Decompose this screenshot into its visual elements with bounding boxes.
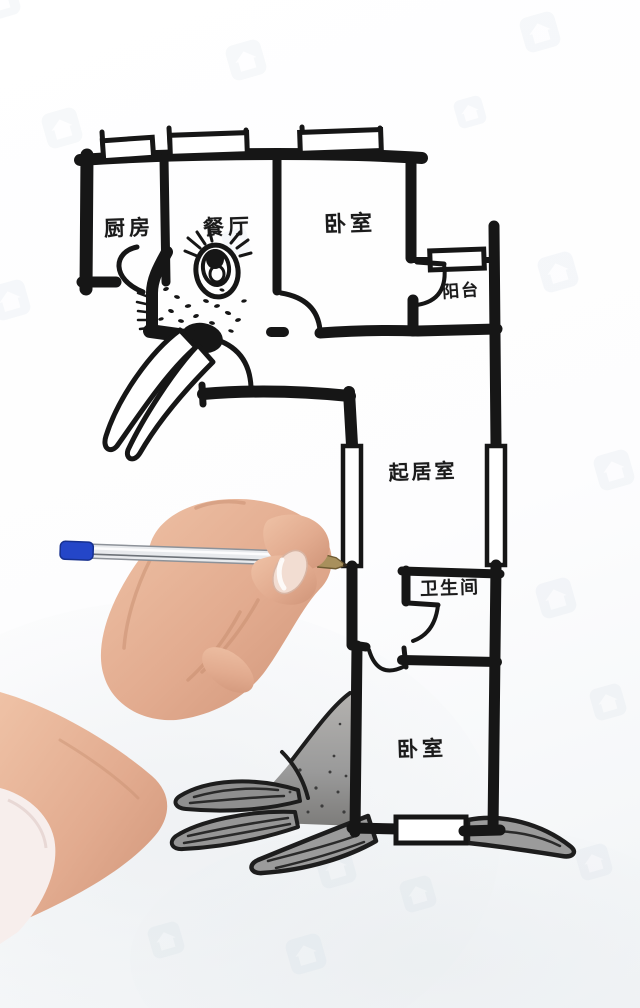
room-label-dining: 餐厅 <box>202 210 253 242</box>
wall-left <box>86 155 87 289</box>
pen-cap <box>60 541 94 560</box>
illustration-canvas: 厨房 餐厅 卧室 阳台 起居室 卫生间 卧室 <box>0 0 640 1008</box>
wall-bedroom-bottom-bottom <box>464 830 500 831</box>
window-bedroom-bottom <box>396 817 466 843</box>
wall-bedroom-bottom-left <box>355 646 357 832</box>
window-dining <box>170 133 248 157</box>
wall-right-lower <box>493 565 496 830</box>
wall-living-left-upper <box>349 392 352 445</box>
floorplan-walrus-drawing <box>0 0 640 1008</box>
walrus-nose-curve <box>119 247 143 292</box>
door-leaf-balcony <box>417 262 444 264</box>
room-label-living-room: 起居室 <box>388 454 458 485</box>
wall-neck <box>203 392 350 396</box>
room-label-bathroom: 卫生间 <box>420 573 481 601</box>
window-kitchen <box>102 137 153 160</box>
window-living-right <box>487 446 505 565</box>
wall-right-upper <box>494 226 496 444</box>
room-label-balcony: 阳台 <box>441 275 481 303</box>
door-arc-bathroom <box>413 605 438 641</box>
door-arc-bedroom-top <box>281 293 320 330</box>
window-balcony <box>430 249 485 270</box>
wall-bathroom-bottom <box>402 660 497 662</box>
walrus-face <box>105 229 251 459</box>
room-label-bedroom-bottom: 卧室 <box>396 732 447 764</box>
door-leaf-bathroom <box>408 603 438 605</box>
room-label-bedroom-top: 卧室 <box>323 205 376 239</box>
window-bedroom-top <box>300 130 382 154</box>
window-living-left <box>343 446 361 566</box>
room-label-kitchen: 厨房 <box>103 211 154 243</box>
